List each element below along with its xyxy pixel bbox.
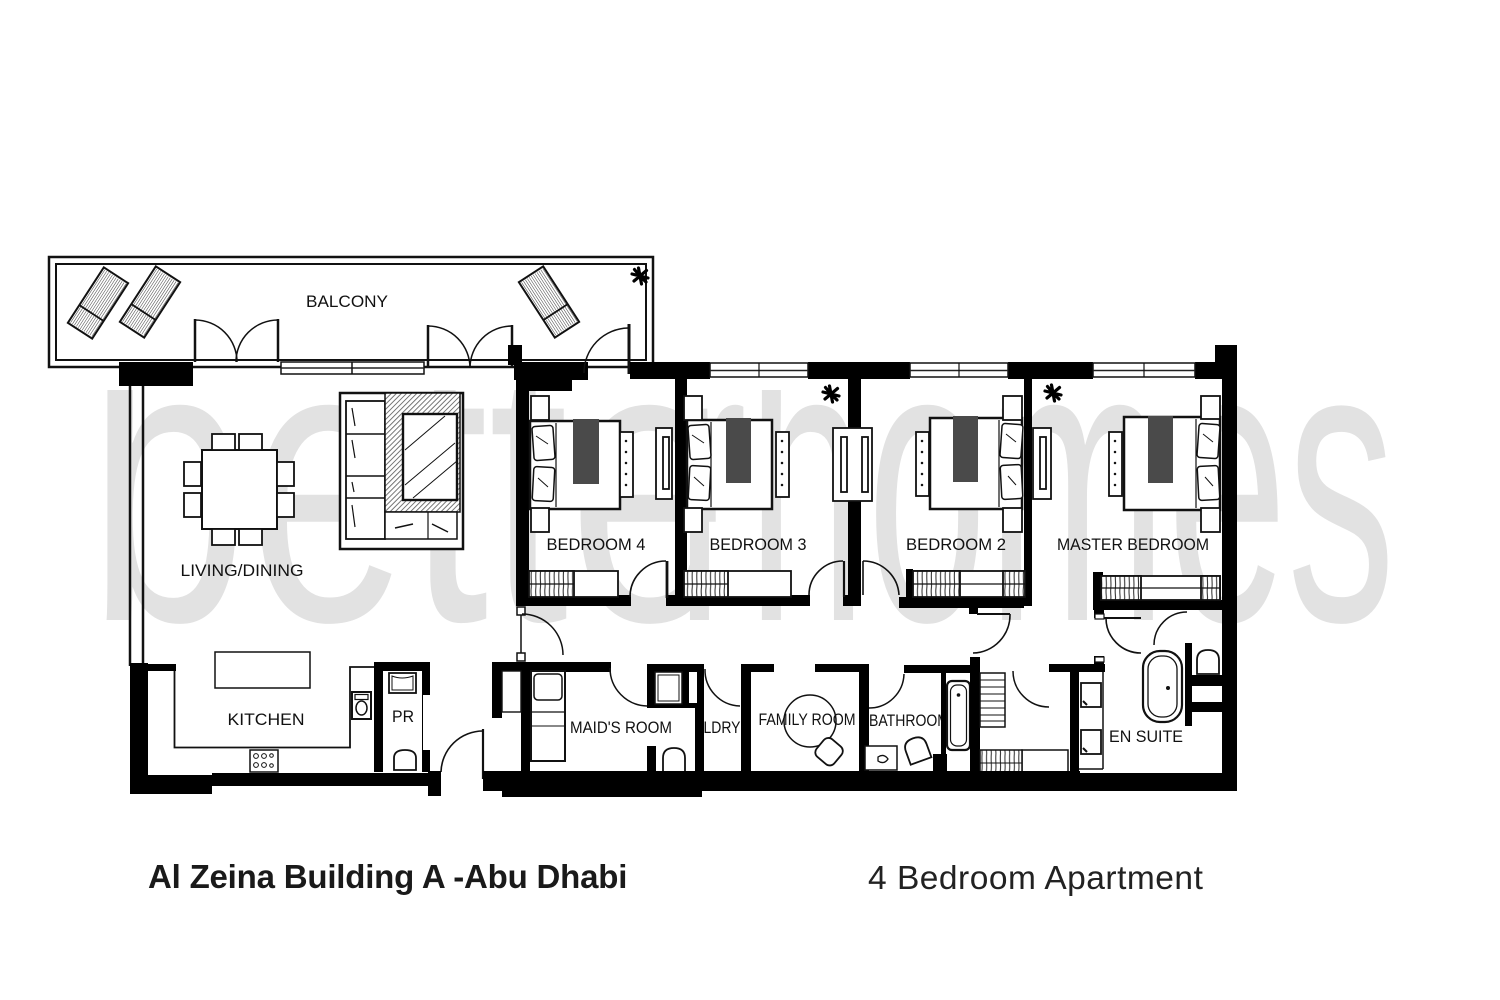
svg-text:BALCONY: BALCONY xyxy=(306,293,388,311)
svg-text:MAID'S ROOM: MAID'S ROOM xyxy=(570,719,672,737)
svg-text:EN SUITE: EN SUITE xyxy=(1109,728,1183,746)
svg-text:BEDROOM 3: BEDROOM 3 xyxy=(710,536,807,554)
svg-text:FAMILY ROOM: FAMILY ROOM xyxy=(759,711,856,729)
svg-text:BATHROOM: BATHROOM xyxy=(869,712,949,730)
svg-text:PR: PR xyxy=(392,708,414,726)
svg-text:LDRY: LDRY xyxy=(704,719,741,737)
svg-text:LIVING/DINING: LIVING/DINING xyxy=(181,562,304,580)
svg-text:Al Zeina Building A -Abu Dhabi: Al Zeina Building A -Abu Dhabi xyxy=(148,858,627,895)
svg-text:BEDROOM 4: BEDROOM 4 xyxy=(547,536,646,554)
svg-text:KITCHEN: KITCHEN xyxy=(228,711,305,729)
svg-text:BEDROOM 2: BEDROOM 2 xyxy=(906,536,1006,554)
svg-text:4 Bedroom Apartment: 4 Bedroom Apartment xyxy=(868,860,1204,897)
svg-text:MASTER BEDROOM: MASTER BEDROOM xyxy=(1057,536,1209,554)
